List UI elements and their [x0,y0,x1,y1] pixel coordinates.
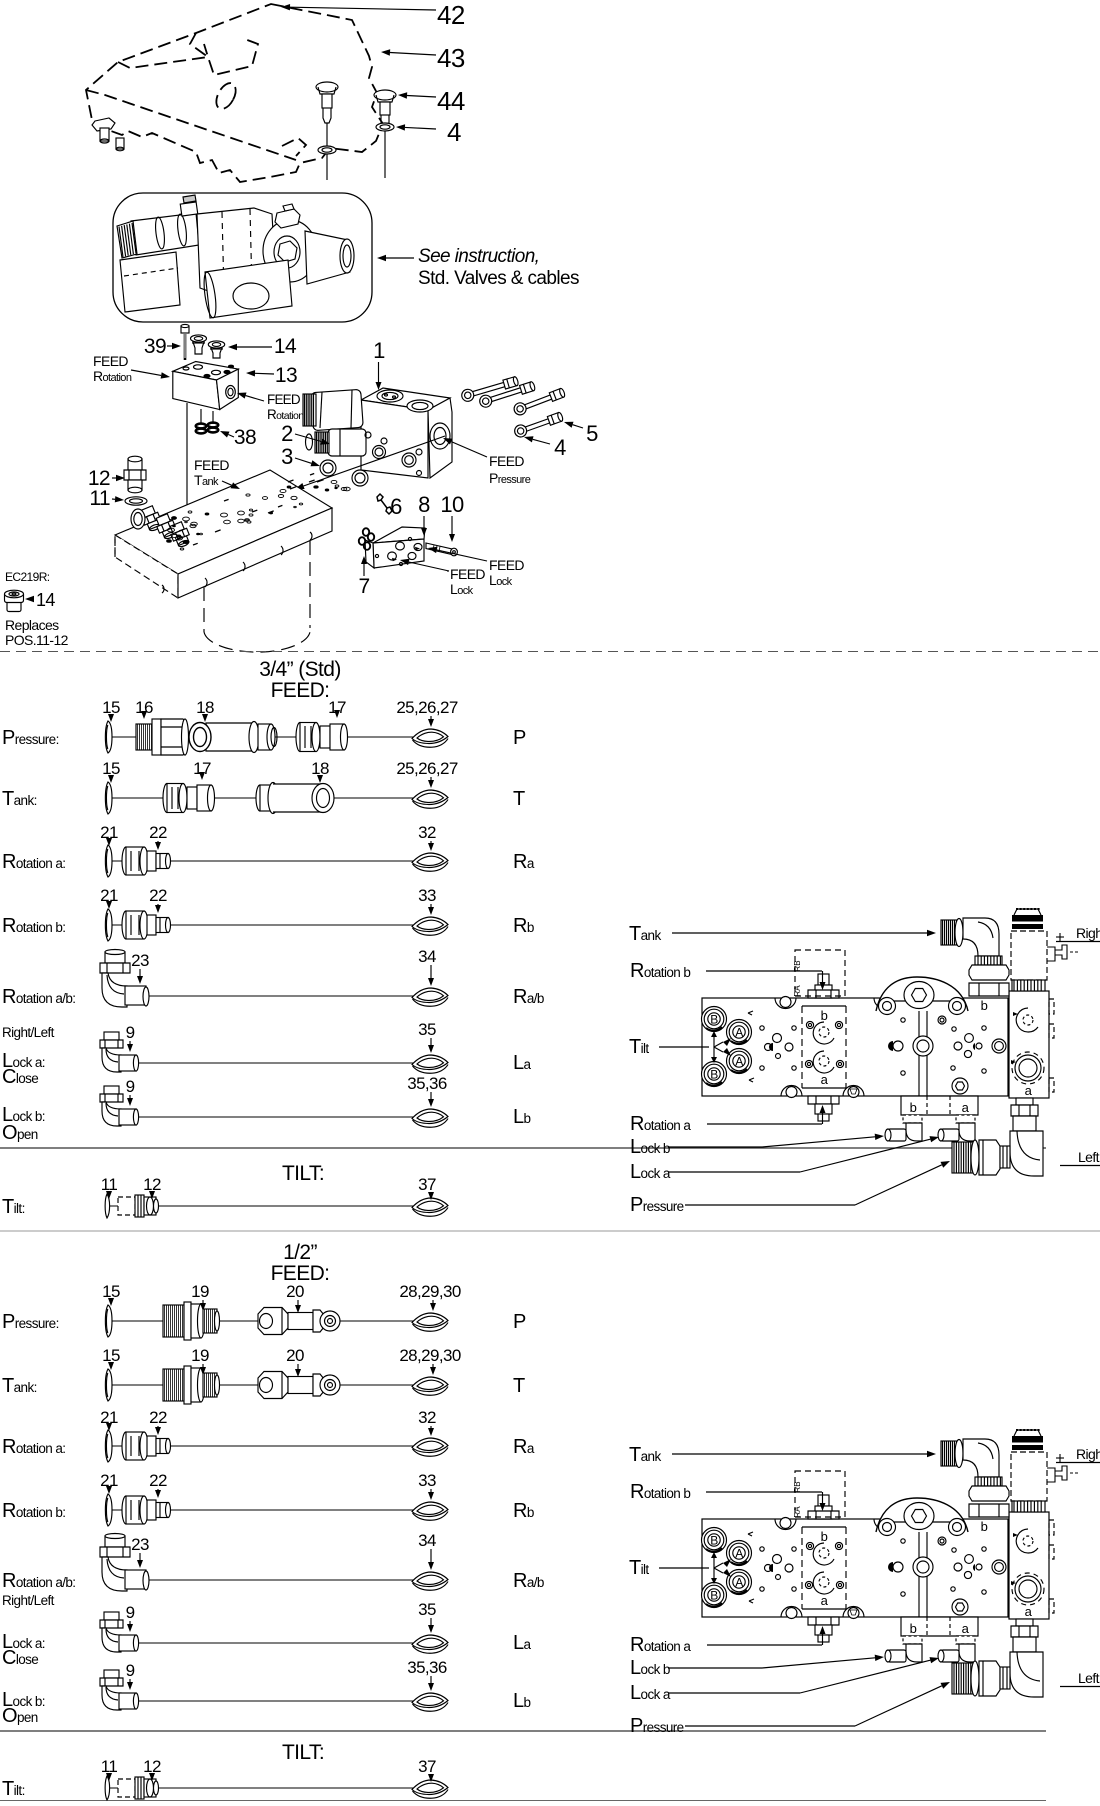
svg-text:42: 42 [437,0,465,30]
svg-text:33: 33 [418,886,436,905]
svg-text:1/2”: 1/2” [283,1241,317,1264]
svg-text:9: 9 [126,1077,135,1096]
svg-text:39: 39 [144,335,166,358]
svg-text:38: 38 [234,426,256,449]
svg-text:37: 37 [418,1757,436,1776]
svg-text:2: 2 [281,421,293,446]
svg-text:22: 22 [149,823,167,842]
svg-text:9: 9 [126,1023,135,1042]
svg-text:FEED: FEED [489,453,524,469]
svg-text:32: 32 [418,1408,436,1427]
svg-text:Right: Right [1076,1446,1100,1462]
svg-text:Left: Left [1078,1670,1100,1686]
svg-text:Left: Left [1078,1149,1100,1165]
svg-text:4: 4 [554,435,566,460]
svg-text:8: 8 [418,492,430,517]
svg-text:Std. Valves & cables: Std. Valves & cables [418,268,579,289]
svg-text:FEED: FEED [450,566,485,582]
svg-text:9: 9 [126,1603,135,1622]
svg-text:23: 23 [131,951,149,970]
svg-text:FEED: FEED [489,557,524,573]
svg-text:20: 20 [286,1346,304,1365]
svg-text:T: T [513,788,525,810]
svg-text:POS.11-12: POS.11-12 [5,632,69,648]
svg-text:1: 1 [373,338,385,363]
svg-text:35,36: 35,36 [407,1658,447,1677]
svg-text:19: 19 [191,1282,209,1301]
svg-text:Right: Right [1076,925,1100,941]
svg-text:25,26,27: 25,26,27 [396,698,458,717]
svg-text:FEED: FEED [194,457,229,473]
svg-text:FEED:: FEED: [271,679,330,702]
svg-text:Rotation: Rotation [267,407,304,422]
svg-text:7: 7 [358,575,369,598]
svg-text:22: 22 [149,1408,167,1427]
svg-text:22: 22 [149,886,167,905]
svg-text:P: P [513,1311,526,1333]
svg-text:28,29,30: 28,29,30 [399,1346,461,1365]
svg-text:43: 43 [437,43,465,73]
svg-text:4: 4 [447,117,461,147]
svg-text:32: 32 [418,823,436,842]
svg-text:34: 34 [418,1531,436,1550]
svg-text:FEED: FEED [267,392,301,407]
svg-text:EC219R:: EC219R: [5,570,50,584]
svg-text:TILT:: TILT: [282,1162,324,1185]
svg-text:14: 14 [274,335,297,358]
svg-text:T: T [513,1375,525,1397]
svg-text:35: 35 [418,1600,436,1619]
svg-text:P: P [513,727,526,749]
svg-text:35,36: 35,36 [407,1074,447,1093]
svg-text:34: 34 [418,947,436,966]
svg-text:28,29,30: 28,29,30 [399,1282,461,1301]
svg-text:Replaces: Replaces [5,617,59,633]
svg-text:10: 10 [440,492,464,517]
svg-text:37: 37 [418,1175,436,1194]
svg-text:25,26,27: 25,26,27 [396,759,458,778]
svg-text:9: 9 [126,1661,135,1680]
svg-text:3/4” (Std): 3/4” (Std) [259,658,341,681]
svg-text:44: 44 [437,86,465,116]
svg-text:20: 20 [286,1282,304,1301]
svg-text:19: 19 [191,1346,209,1365]
svg-text:3: 3 [281,444,293,469]
svg-text:23: 23 [131,1535,149,1554]
svg-text:22: 22 [149,1471,167,1490]
svg-text:FEED: FEED [93,353,128,369]
svg-text:35: 35 [418,1020,436,1039]
svg-text:Right/Left: Right/Left [2,1025,55,1040]
svg-text:TILT:: TILT: [282,1741,324,1764]
svg-text:Right/Left: Right/Left [2,1593,55,1608]
svg-text:33: 33 [418,1471,436,1490]
svg-text:6: 6 [390,494,402,519]
svg-text:5: 5 [586,421,598,446]
svg-text:13: 13 [275,364,297,387]
svg-text:14: 14 [36,590,55,610]
svg-text:See instruction,: See instruction, [418,246,539,267]
svg-text:11: 11 [89,487,110,510]
